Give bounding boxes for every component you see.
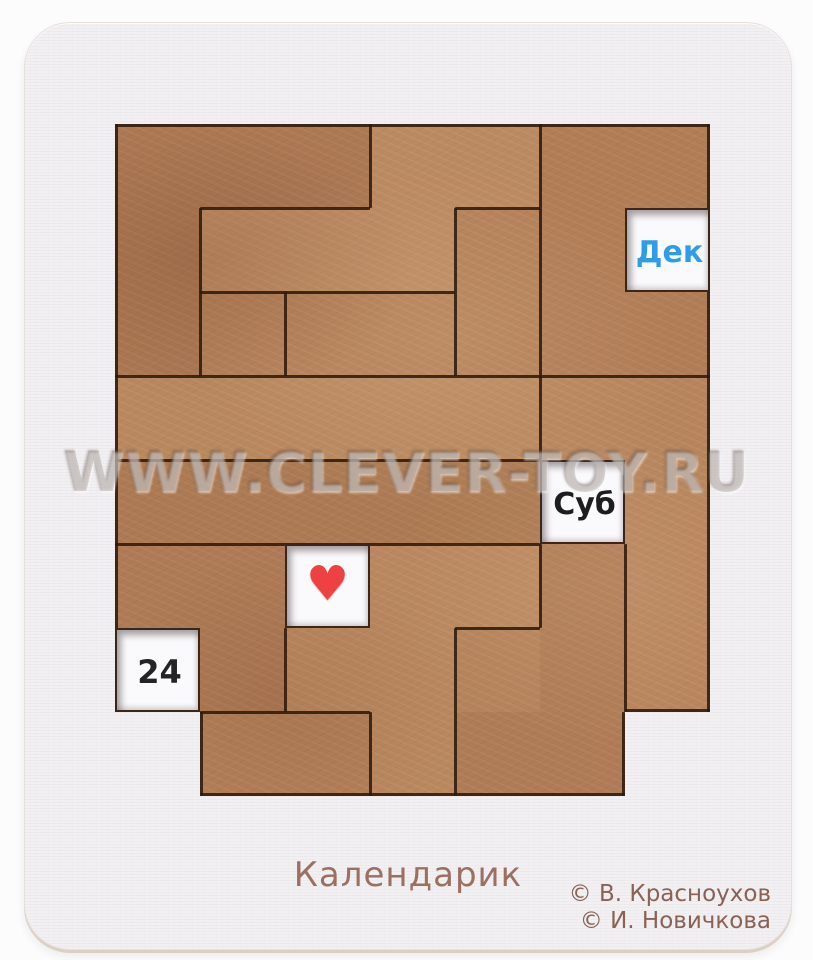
piece-seam bbox=[115, 124, 118, 712]
weekday-label: Суб bbox=[553, 487, 616, 522]
piece-seam bbox=[455, 207, 540, 210]
day-label: 24 bbox=[137, 653, 182, 691]
piece-seam bbox=[200, 207, 370, 210]
piece-a bbox=[115, 124, 370, 208]
piece-m bbox=[370, 544, 540, 628]
heart-window: ♥ bbox=[285, 544, 370, 628]
piece-seam bbox=[115, 375, 710, 378]
piece-j bbox=[455, 628, 625, 796]
piece-seam bbox=[199, 208, 202, 376]
piece-b bbox=[370, 124, 540, 208]
piece-seam bbox=[115, 124, 710, 127]
puzzle-recess: Дек Суб 24 ♥ bbox=[115, 124, 710, 796]
piece-seam bbox=[369, 712, 372, 796]
weekday-window: Суб bbox=[540, 460, 625, 544]
piece-seam bbox=[200, 712, 203, 796]
piece-seam bbox=[284, 628, 287, 712]
month-label: Дек bbox=[636, 235, 703, 270]
piece-e bbox=[540, 292, 710, 376]
piece-seam bbox=[622, 712, 625, 796]
piece-seam bbox=[454, 628, 457, 796]
month-window: Дек bbox=[625, 208, 710, 292]
heart-icon: ♥ bbox=[306, 556, 349, 612]
copyright-author-2: © И. Новичкова bbox=[569, 908, 771, 935]
piece-m bbox=[370, 712, 455, 796]
piece-m bbox=[285, 628, 540, 712]
piece-i bbox=[115, 544, 285, 628]
piece-seam bbox=[200, 291, 455, 294]
piece-seam bbox=[455, 627, 540, 630]
piece-e bbox=[540, 208, 625, 292]
puzzle-board: Дек Суб 24 ♥ Календарик © В. Красноухов … bbox=[24, 22, 792, 950]
piece-b bbox=[200, 208, 455, 292]
piece-f bbox=[625, 460, 710, 712]
piece-h bbox=[115, 460, 540, 544]
piece-seam bbox=[454, 208, 457, 376]
piece-i bbox=[200, 628, 285, 712]
piece-seam bbox=[200, 793, 625, 796]
piece-seam bbox=[625, 709, 710, 712]
piece-g bbox=[115, 376, 540, 460]
piece-a bbox=[115, 208, 200, 376]
piece-seam bbox=[115, 459, 540, 462]
product-photo: Дек Суб 24 ♥ Календарик © В. Красноухов … bbox=[0, 0, 813, 960]
piece-seam bbox=[539, 544, 542, 628]
piece-f bbox=[540, 376, 710, 460]
piece-e bbox=[540, 124, 710, 208]
piece-seam bbox=[284, 292, 287, 376]
piece-seam bbox=[539, 124, 542, 376]
copyright-author-1: © В. Красноухов bbox=[569, 881, 771, 908]
day-window: 24 bbox=[115, 628, 200, 712]
piece-j bbox=[540, 544, 625, 628]
piece-seam bbox=[624, 544, 627, 712]
piece-seam bbox=[369, 124, 372, 208]
copyright-block: © В. Красноухов © И. Новичкова bbox=[569, 881, 771, 935]
piece-seam bbox=[539, 376, 542, 460]
